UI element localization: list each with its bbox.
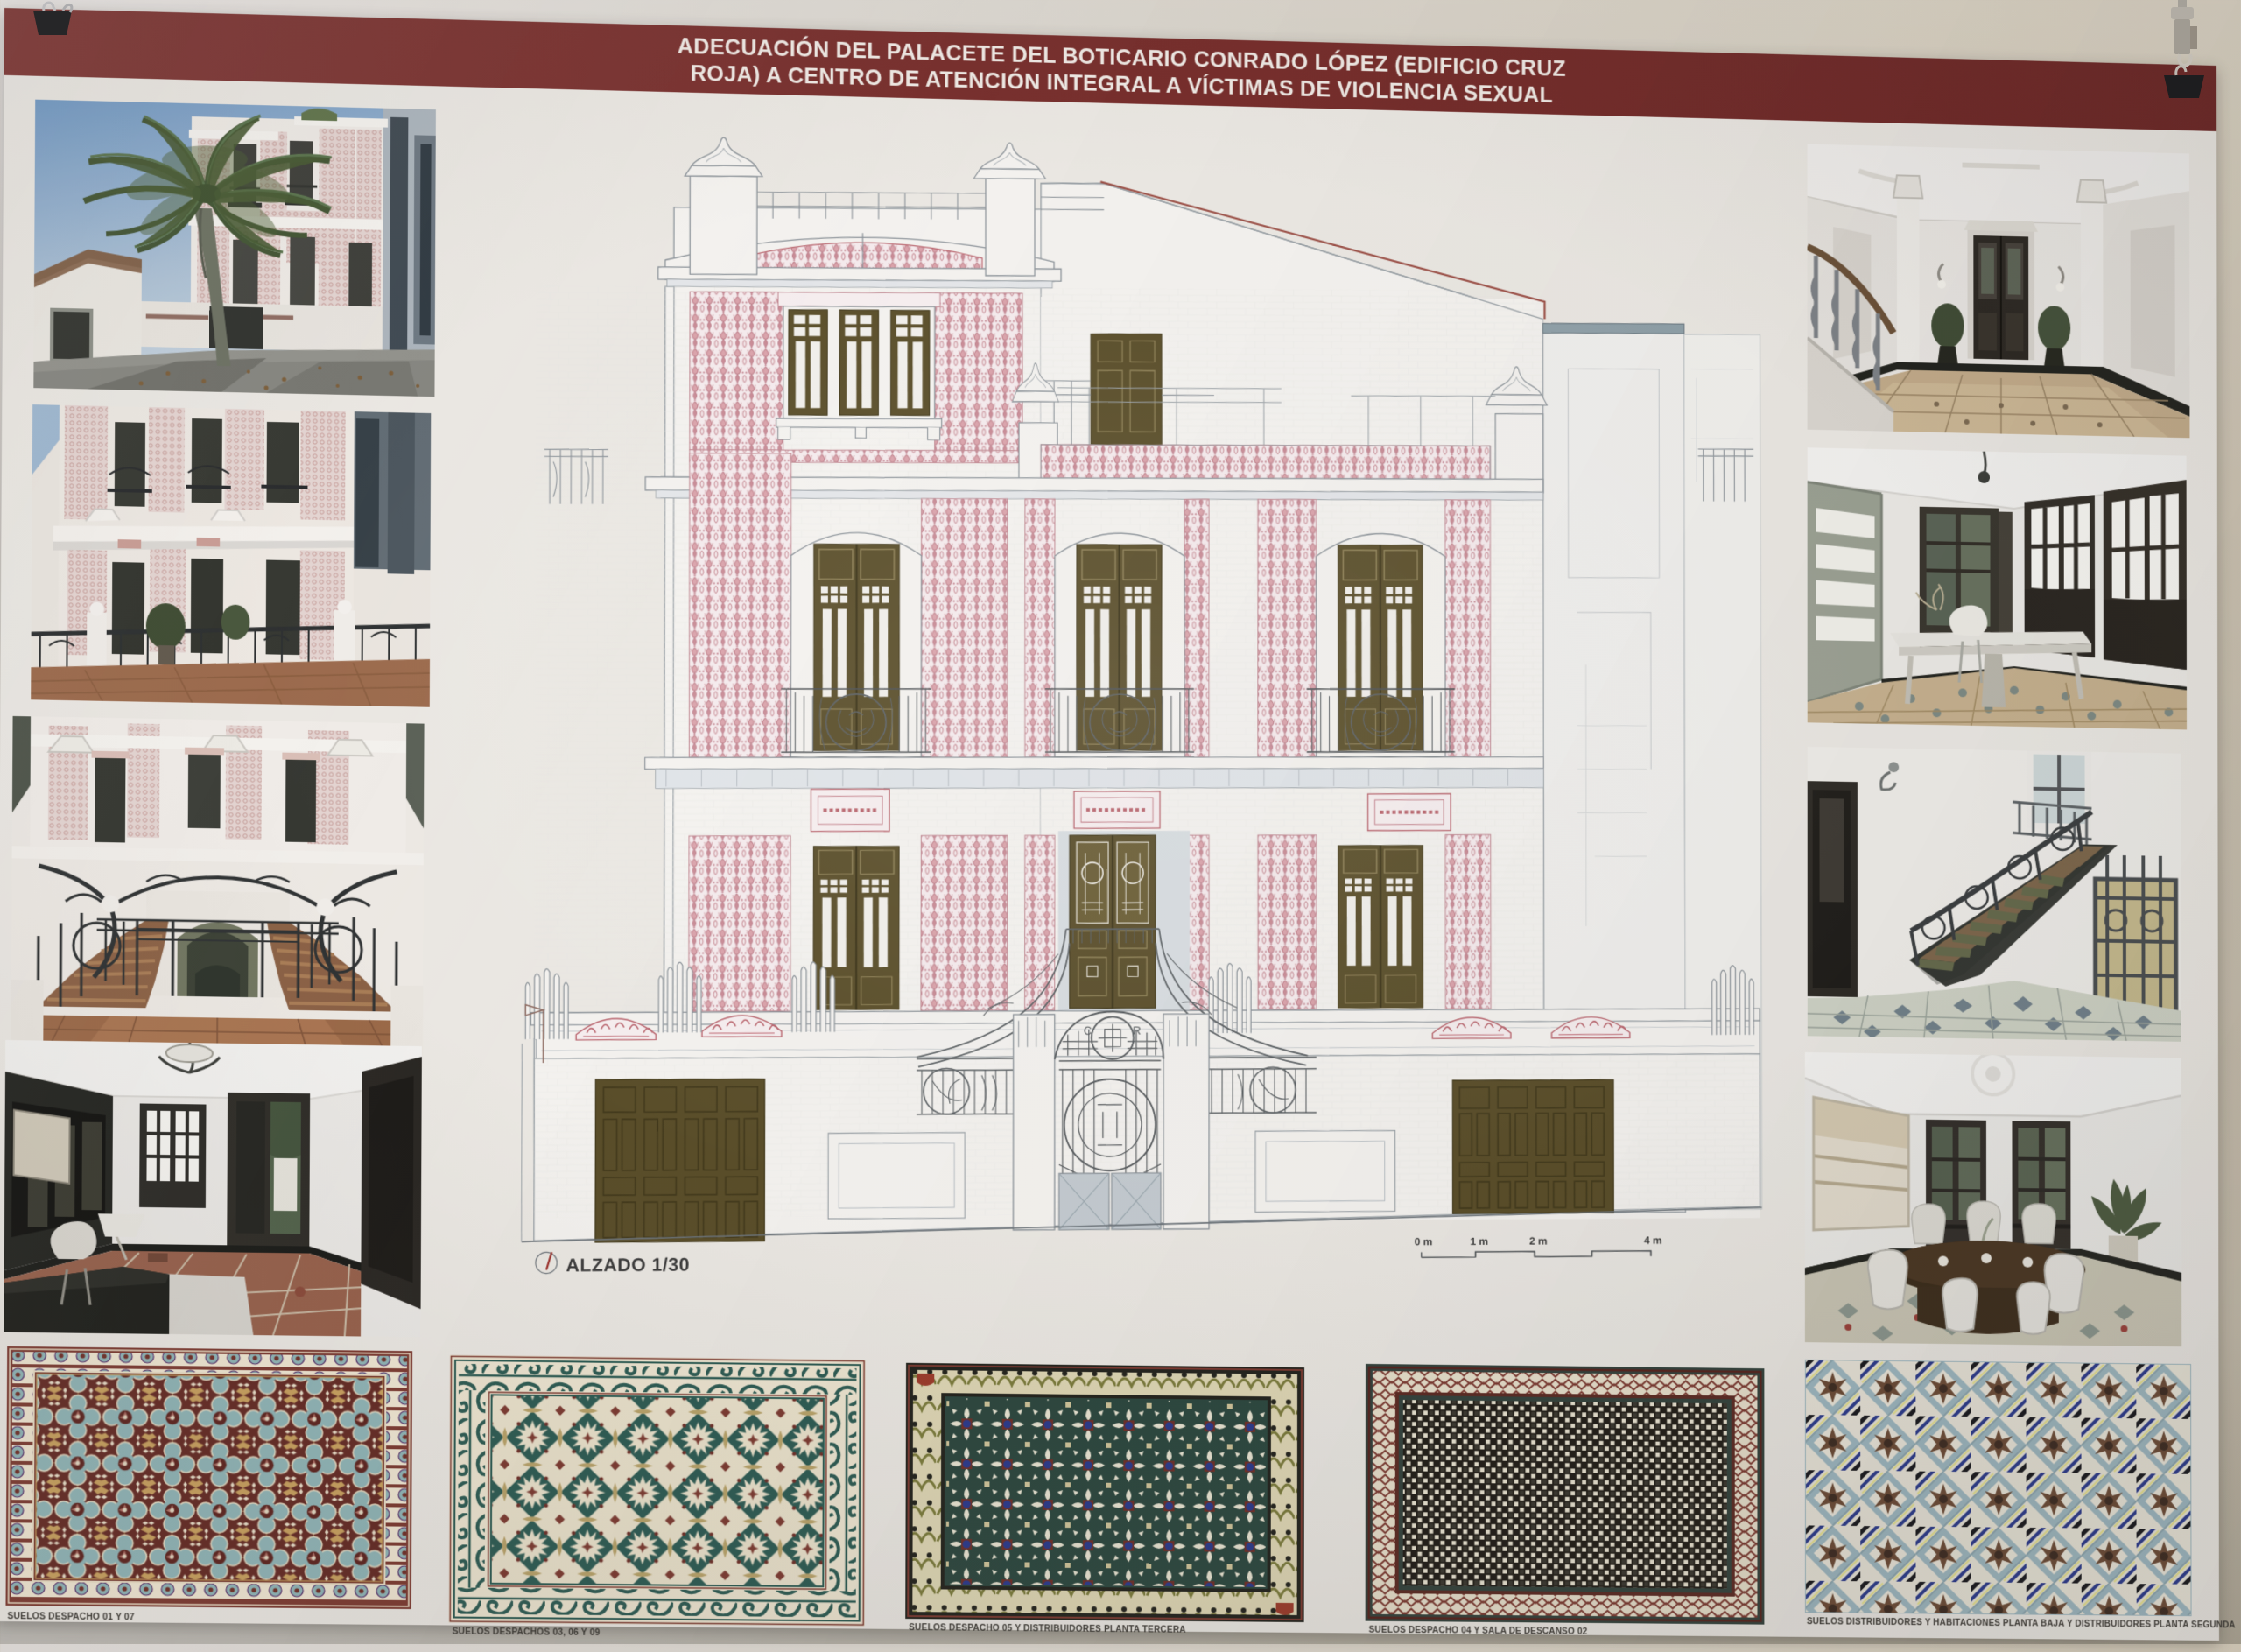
- svg-text:2 m: 2 m: [1529, 1235, 1548, 1248]
- svg-text:ALZADO 1/30: ALZADO 1/30: [566, 1255, 690, 1276]
- svg-text:1 m: 1 m: [1470, 1235, 1488, 1248]
- svg-text:0 m: 0 m: [1415, 1235, 1433, 1248]
- svg-text:4 m: 4 m: [1644, 1234, 1662, 1247]
- svg-text:C: C: [1084, 1024, 1092, 1037]
- svg-text:R: R: [1133, 1024, 1141, 1037]
